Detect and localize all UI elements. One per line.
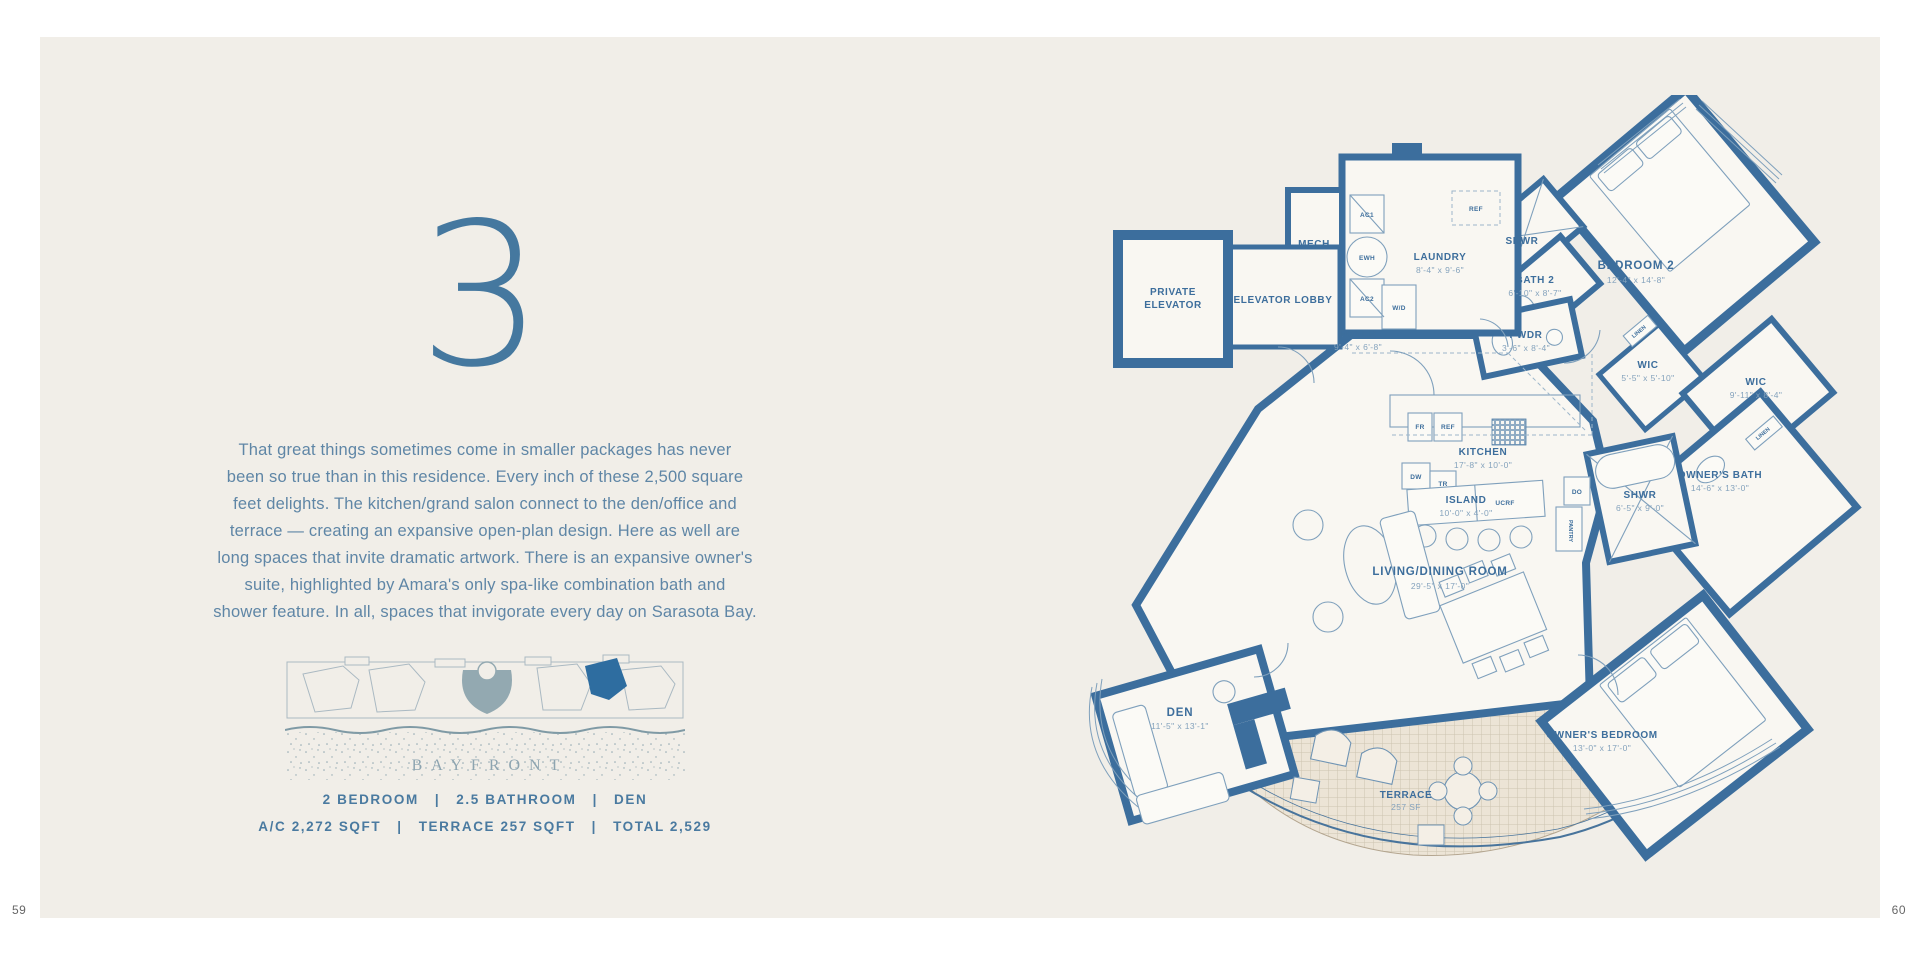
floor-plan: PRIVATE ELEVATOR ELEVATOR LOBBY MECH LAU…	[1040, 95, 1910, 885]
specs-line-1: 2 BEDROOM | 2.5 BATHROOM | DEN	[185, 792, 785, 807]
label-wd: W/D	[1392, 305, 1406, 312]
residence-description: That great things sometimes come in smal…	[195, 437, 775, 626]
svg-text:11'-5" x 13'-1": 11'-5" x 13'-1"	[1151, 721, 1209, 731]
label-owners-shwr: SHWR	[1624, 490, 1657, 501]
label-wic1: WIC	[1637, 360, 1658, 371]
highlighted-unit	[585, 658, 627, 700]
label-pantry: PANTRY	[1567, 520, 1573, 542]
label-foyer: FOYER	[1339, 329, 1377, 340]
private-elevator-room	[1118, 235, 1228, 363]
bedroom2-room	[1556, 95, 1815, 351]
label-ac1: AC1	[1360, 212, 1374, 219]
label-wic2: WIC	[1745, 377, 1766, 388]
label-den: DEN	[1167, 707, 1194, 719]
svg-text:5'-5" x 5'-10": 5'-5" x 5'-10"	[1621, 373, 1674, 383]
label-dw: DW	[1410, 474, 1422, 481]
label-owners-bath: OWNER'S BATH	[1678, 470, 1762, 481]
wall-segment	[1392, 143, 1422, 157]
svg-text:6'-5" x 9'-0": 6'-5" x 9'-0"	[1616, 503, 1664, 513]
page-number-left: 59	[12, 903, 26, 917]
label-living-dining: LIVING/DINING ROOM	[1372, 566, 1507, 578]
label-kitchen: KITCHEN	[1459, 447, 1508, 458]
bayfront-label: BAYFRONT	[412, 757, 569, 774]
residence-number: 3	[331, 188, 631, 418]
svg-text:10'-0" x 4'-0": 10'-0" x 4'-0"	[1439, 508, 1492, 518]
svg-text:12'-4" x 14'-8": 12'-4" x 14'-8"	[1607, 275, 1665, 285]
site-plan-diagram: BAYFRONT	[285, 640, 685, 780]
svg-text:9'-4" x 6'-8": 9'-4" x 6'-8"	[1334, 342, 1382, 352]
svg-text:17'-8" x 10'-0": 17'-8" x 10'-0"	[1454, 460, 1512, 470]
label-ac2: AC2	[1360, 296, 1374, 303]
svg-text:6'-10" x 8'-7": 6'-10" x 8'-7"	[1508, 288, 1561, 298]
svg-text:14'-6" x 13'-0": 14'-6" x 13'-0"	[1691, 483, 1749, 493]
label-owners-bedroom: OWNER'S BEDROOM	[1546, 730, 1657, 741]
label-private-elevator: PRIVATE	[1150, 287, 1196, 298]
label-tr: TR	[1438, 481, 1447, 488]
specs-line-2: A/C 2,272 SQFT | TERRACE 257 SQFT | TOTA…	[185, 819, 785, 834]
label-ewh: EWH	[1359, 255, 1375, 262]
svg-text:13'-0" x 17'-0": 13'-0" x 17'-0"	[1573, 743, 1631, 753]
amenity-building	[462, 662, 512, 714]
label-ref-laundry: REF	[1469, 206, 1483, 213]
brochure-spread: { "page": { "left_number": "59", "right_…	[0, 0, 1920, 960]
label-terrace: TERRACE	[1380, 790, 1433, 801]
label-ref-kitchen: REF	[1441, 424, 1455, 431]
label-do: DO	[1572, 489, 1582, 496]
label-island: ISLAND	[1446, 495, 1487, 506]
svg-text:257 SF: 257 SF	[1391, 802, 1421, 812]
page-number-right: 60	[1892, 903, 1906, 917]
svg-text:3'-6" x 8'-4": 3'-6" x 8'-4"	[1502, 343, 1550, 353]
label-elevator-lobby: ELEVATOR LOBBY	[1234, 295, 1333, 306]
label-mech: MECH	[1298, 239, 1330, 250]
label-fr: FR	[1415, 424, 1424, 431]
label-pwdr: PWDR	[1510, 330, 1543, 341]
svg-text:8'-4" x 9'-6": 8'-4" x 9'-6"	[1416, 265, 1464, 275]
svg-text:9'-11" x 8'-4": 9'-11" x 8'-4"	[1730, 390, 1783, 400]
label-ucrf: UCRF	[1495, 500, 1514, 507]
label-bedroom2: BEDROOM 2	[1598, 260, 1675, 272]
svg-text:29'-5" x 17'-0": 29'-5" x 17'-0"	[1411, 581, 1469, 591]
label-laundry: LAUNDRY	[1414, 252, 1467, 263]
label-shwr-bath2: SHWR	[1506, 236, 1539, 247]
label-bath2: BATH 2	[1516, 275, 1555, 286]
svg-text:ELEVATOR: ELEVATOR	[1144, 300, 1202, 311]
